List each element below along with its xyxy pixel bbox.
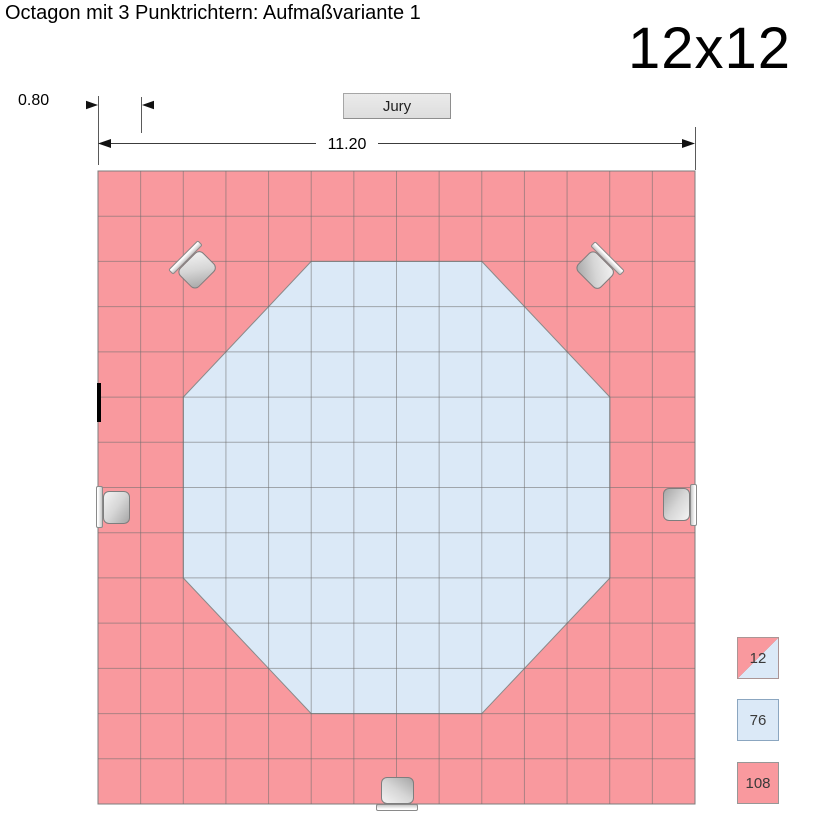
- arrow-left-icon: [142, 101, 154, 109]
- arena-diagram: 11.20: [0, 0, 821, 838]
- marker-body: [663, 488, 690, 521]
- legend-inner-count: 76: [750, 712, 767, 729]
- legend-split-cells: 12: [737, 637, 779, 679]
- marker-body: [103, 491, 130, 524]
- text-cursor: [97, 383, 101, 422]
- marker-backplate: [96, 486, 103, 528]
- arrow-left-icon: [98, 139, 111, 148]
- arrow-right-icon: [86, 101, 98, 109]
- legend-outer-count: 108: [745, 775, 770, 792]
- legend-split-count: 12: [750, 650, 767, 667]
- arrow-right-icon: [682, 139, 695, 148]
- marker-backplate: [690, 484, 697, 526]
- width-dimension: 11.20: [98, 127, 696, 170]
- canvas: Octagon mit 3 Punktrichtern: Aufmaßvaria…: [0, 0, 821, 838]
- judge-icon-right[interactable]: [663, 483, 697, 527]
- cell-dimension: [86, 96, 154, 165]
- judge-icon-bottom[interactable]: [375, 777, 419, 811]
- judge-icon-left[interactable]: [96, 485, 130, 529]
- legend-outer-cells: 108: [737, 762, 779, 804]
- arena-width-value: 11.20: [328, 136, 367, 153]
- marker-backplate: [376, 804, 418, 811]
- marker-body: [381, 777, 414, 804]
- legend-inner-cells: 76: [737, 699, 779, 741]
